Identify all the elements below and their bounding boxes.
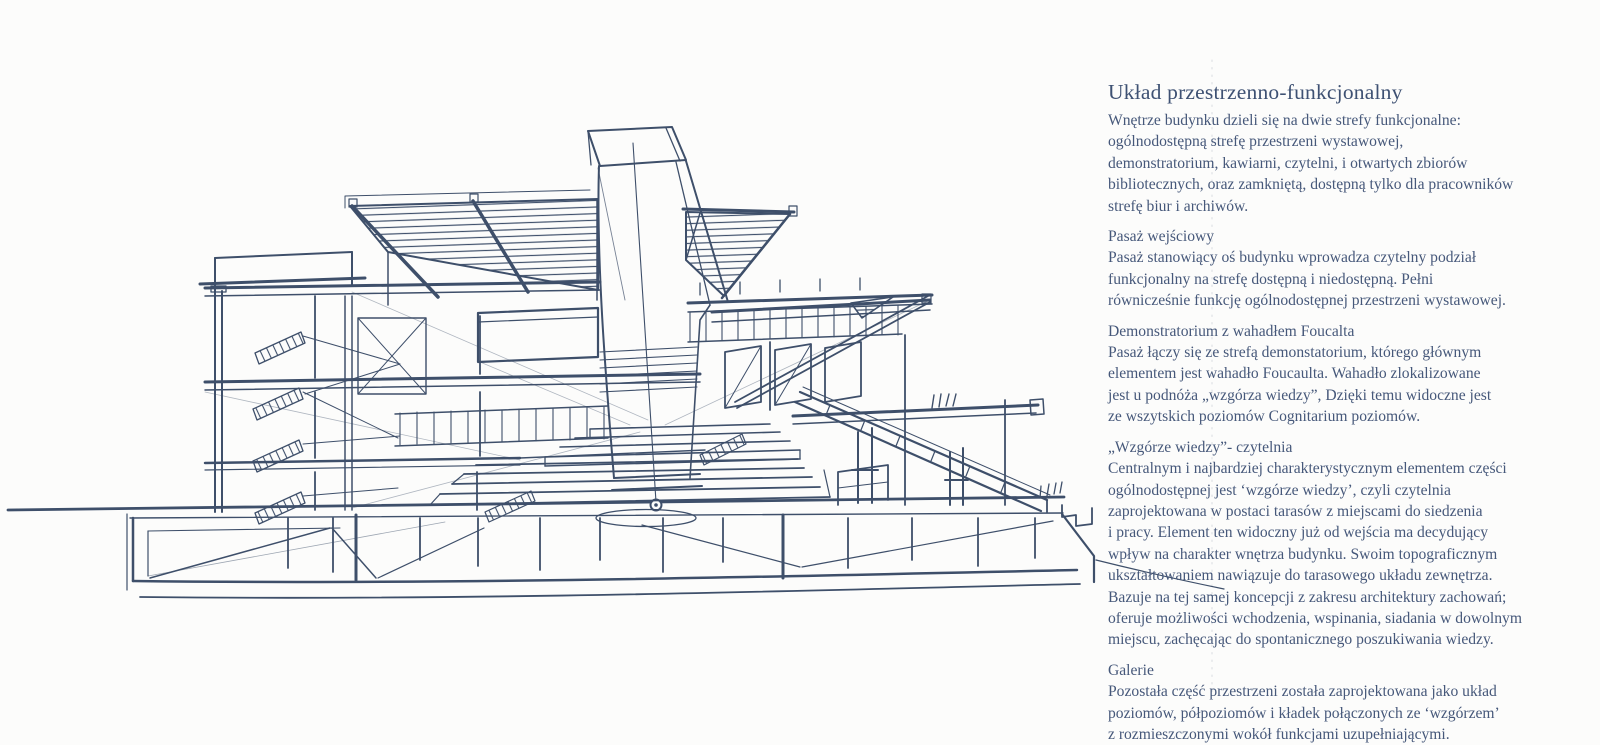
construction-lines xyxy=(205,292,930,508)
section-galerie: Galerie Pozostała część przestrzeni zost… xyxy=(1108,660,1582,745)
section-heading: Demonstratorium z wahadłem Foucalta xyxy=(1108,321,1582,342)
foundation-piles xyxy=(288,515,1035,580)
roof-canopy-left xyxy=(345,190,598,305)
left-stairwell-stairs xyxy=(253,332,400,524)
foundation xyxy=(127,514,1094,598)
section-demonstratorium: Demonstratorium z wahadłem Foucalta Pasa… xyxy=(1108,321,1582,428)
page-title: Układ przestrzenno-funkcjonalny xyxy=(1108,79,1582,105)
foucault-pendulum xyxy=(596,143,696,527)
section-body: Pasaż łączy się ze strefą demonstatorium… xyxy=(1108,342,1582,428)
section-heading: Pasaż wejściowy xyxy=(1108,226,1582,247)
page: Układ przestrzenno-funkcjonalny Wnętrze … xyxy=(0,0,1600,733)
section-body: Pozostała część przestrzeni została zapr… xyxy=(1108,681,1582,745)
description-column: Układ przestrzenno-funkcjonalny Wnętrze … xyxy=(1108,79,1582,745)
section-heading: „Wzgórze wiedzy”- czytelnia xyxy=(1108,437,1582,458)
section-body: Pasaż stanowiący oś budynku wprowadza cz… xyxy=(1108,247,1582,311)
section-pasaz-wejsciowy: Pasaż wejściowy Pasaż stanowiący oś budy… xyxy=(1108,226,1582,312)
section-body: Centralnym i najbardziej charakterystycz… xyxy=(1108,458,1582,651)
section-wzgorze-wiedzy: „Wzgórze wiedzy”- czytelnia Centralnym i… xyxy=(1108,437,1582,651)
intro-paragraph: Wnętrze budynku dzieli się na dwie stref… xyxy=(1108,110,1582,217)
section-heading: Galerie xyxy=(1108,660,1582,681)
left-section xyxy=(200,252,700,512)
